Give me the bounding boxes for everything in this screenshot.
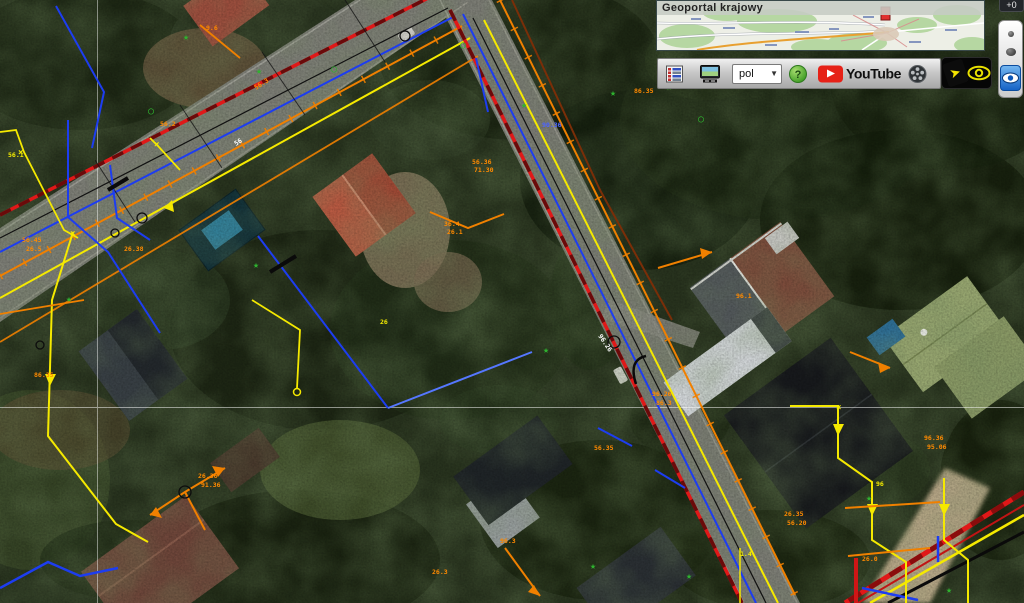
svg-text:★: ★ [543,345,549,356]
svg-text:56.20: 56.20 [787,519,807,527]
layer-visibility-button[interactable] [1000,65,1021,91]
youtube-play-icon [818,65,843,82]
settings-wheel-icon[interactable] [908,64,927,83]
language-select[interactable]: pol ▼ [732,64,782,84]
svg-text:26.3: 26.3 [432,568,448,576]
svg-text:96.3: 96.3 [500,537,516,545]
map-canvas[interactable]: ★★★★★★★★★★★★○○○○ 56.3671.3036.426.156.45… [0,0,1024,603]
minimap-title: Geoportal krajowy [657,1,984,15]
svg-text:1.4: 1.4 [740,550,752,558]
svg-text:91.36: 91.36 [201,481,221,489]
svg-text:86.35: 86.35 [634,87,654,95]
strip-dot-button[interactable] [1008,31,1014,37]
svg-text:×: × [836,403,841,413]
svg-text:×: × [154,140,159,150]
eye-icon [1002,72,1019,84]
main-toolbar: pol ▼ ? YouTube [657,58,941,89]
svg-text:36.4: 36.4 [444,220,460,228]
svg-text:56.36: 56.36 [472,158,492,166]
svg-text:★: ★ [521,100,527,111]
strip-oval-button[interactable] [1006,48,1016,56]
chevron-down-icon: ▼ [770,69,778,78]
svg-text:○: ○ [460,40,466,51]
svg-text:★: ★ [256,66,262,77]
right-tool-strip [998,20,1023,98]
svg-text:26.1: 26.1 [447,228,463,236]
youtube-label: YouTube [846,66,901,82]
youtube-button[interactable]: YouTube [818,65,901,82]
legend-table-icon[interactable] [666,65,683,82]
svg-text:9.6: 9.6 [206,24,218,32]
svg-text:90.36: 90.36 [542,121,562,129]
svg-text:71.30: 71.30 [474,166,494,174]
svg-text:26.5: 26.5 [26,245,42,253]
svg-text:★: ★ [610,88,616,99]
svg-text:26.38: 26.38 [124,245,144,253]
svg-text:56.35: 56.35 [594,444,614,452]
svg-text:86.3: 86.3 [656,399,672,407]
svg-text:★: ★ [590,561,596,572]
svg-text:★: ★ [866,493,872,504]
zoom-level-button[interactable]: +0 [999,0,1024,12]
svg-text:★: ★ [66,294,72,305]
svg-text:×: × [70,229,75,239]
svg-text:×: × [18,148,23,158]
svg-text:★: ★ [253,260,259,271]
svg-text:★: ★ [946,585,952,596]
svg-text:26.35: 26.35 [784,510,804,518]
svg-text:★: ★ [183,32,189,43]
svg-text:26.0: 26.0 [862,555,878,563]
svg-text:96.1: 96.1 [736,292,752,300]
svg-text:96.26: 96.26 [652,390,672,398]
svg-text:86.35: 86.35 [34,371,54,379]
svg-text:96: 96 [876,480,884,488]
svg-text:56.45: 56.45 [22,236,42,244]
svg-text:○: ○ [331,64,337,75]
geoportal-app: ★★★★★★★★★★★★○○○○ 56.3671.3036.426.156.45… [0,0,1024,603]
highlight-toggle-group: ➤ [941,57,992,89]
svg-text:★: ★ [686,571,692,582]
svg-text:○: ○ [698,114,704,125]
svg-text:26: 26 [380,318,388,326]
visibility-eye-toggle[interactable] [966,64,991,82]
svg-text:26.36: 26.36 [198,472,218,480]
svg-text:○: ○ [148,106,154,117]
flash-arrow-button[interactable]: ➤ [942,58,969,87]
svg-text:96.36: 96.36 [924,434,944,442]
help-button[interactable]: ? [789,65,807,83]
screen-preview-icon[interactable] [700,65,720,83]
svg-text:95.06: 95.06 [927,443,947,451]
language-select-value: pol [739,68,754,80]
svg-text:56.2: 56.2 [160,120,176,128]
overview-minimap[interactable]: Geoportal krajowy [656,0,985,51]
